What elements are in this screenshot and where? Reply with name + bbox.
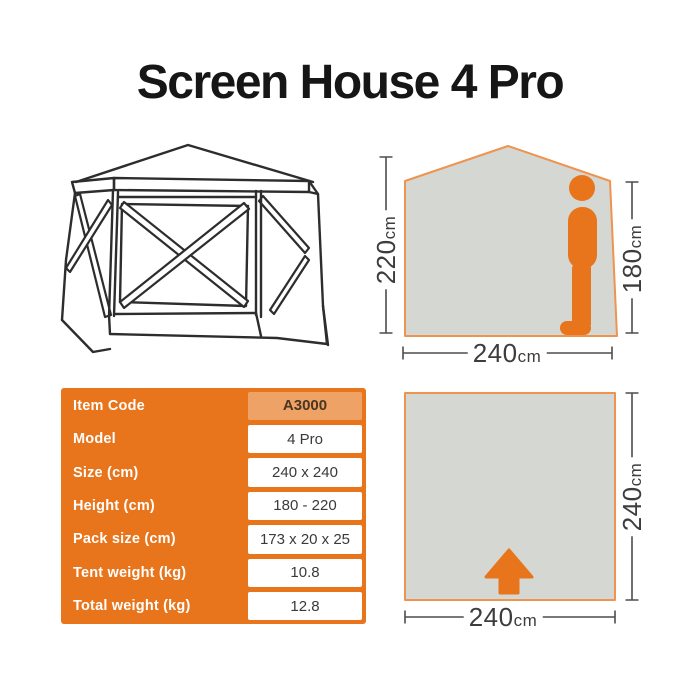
dim-value: 240 bbox=[469, 602, 514, 632]
dim-value: 180 bbox=[617, 248, 647, 293]
dim-value: 240 bbox=[473, 338, 518, 368]
dim-unit: cm bbox=[518, 347, 542, 366]
tent-drawing-icon bbox=[30, 118, 360, 383]
dim-label-footprint-depth: 240cm bbox=[619, 458, 645, 537]
dim-unit: cm bbox=[626, 463, 645, 487]
page-title: Screen House 4 Pro bbox=[0, 55, 700, 110]
dim-unit: cm bbox=[380, 216, 399, 240]
row-label: Total weight (kg) bbox=[61, 590, 248, 623]
product-infographic: Screen House 4 Pro bbox=[0, 0, 700, 700]
row-label: Size (cm) bbox=[61, 456, 248, 489]
row-label: Height (cm) bbox=[61, 489, 248, 522]
dim-value: 240 bbox=[617, 486, 647, 531]
row-label: Tent weight (kg) bbox=[61, 556, 248, 589]
table-row: Pack size (cm) 173 x 20 x 25 bbox=[61, 523, 366, 556]
row-value: 12.8 bbox=[248, 592, 362, 620]
dim-unit: cm bbox=[514, 611, 538, 630]
table-row: Model 4 Pro bbox=[61, 422, 366, 455]
table-row: Item Code A3000 bbox=[61, 389, 366, 422]
table-row: Tent weight (kg) 10.8 bbox=[61, 556, 366, 589]
dim-label-footprint-width: 240cm bbox=[464, 604, 543, 630]
footprint-diagram-svg bbox=[385, 385, 700, 640]
table-row: Total weight (kg) 12.8 bbox=[61, 590, 366, 623]
row-value: 240 x 240 bbox=[248, 458, 362, 486]
row-value: 10.8 bbox=[248, 559, 362, 587]
dim-label-max-height: 220cm bbox=[373, 211, 399, 290]
dim-label-profile-width: 240cm bbox=[468, 340, 547, 366]
row-value: A3000 bbox=[248, 392, 362, 420]
tent-line-art bbox=[30, 118, 360, 383]
row-value: 4 Pro bbox=[248, 425, 362, 453]
row-label: Pack size (cm) bbox=[61, 523, 248, 556]
row-value: 173 x 20 x 25 bbox=[248, 525, 362, 553]
row-label: Model bbox=[61, 422, 248, 455]
dim-value: 220 bbox=[371, 239, 401, 284]
table-row: Height (cm) 180 - 220 bbox=[61, 489, 366, 522]
row-label: Item Code bbox=[61, 389, 248, 422]
row-value: 180 - 220 bbox=[248, 492, 362, 520]
footprint-diagram bbox=[385, 385, 700, 640]
spec-table: Item Code A3000 Model 4 Pro Size (cm) 24… bbox=[61, 388, 366, 624]
table-row: Size (cm) 240 x 240 bbox=[61, 456, 366, 489]
dim-unit: cm bbox=[626, 225, 645, 249]
dim-label-person-height: 180cm bbox=[619, 220, 645, 299]
